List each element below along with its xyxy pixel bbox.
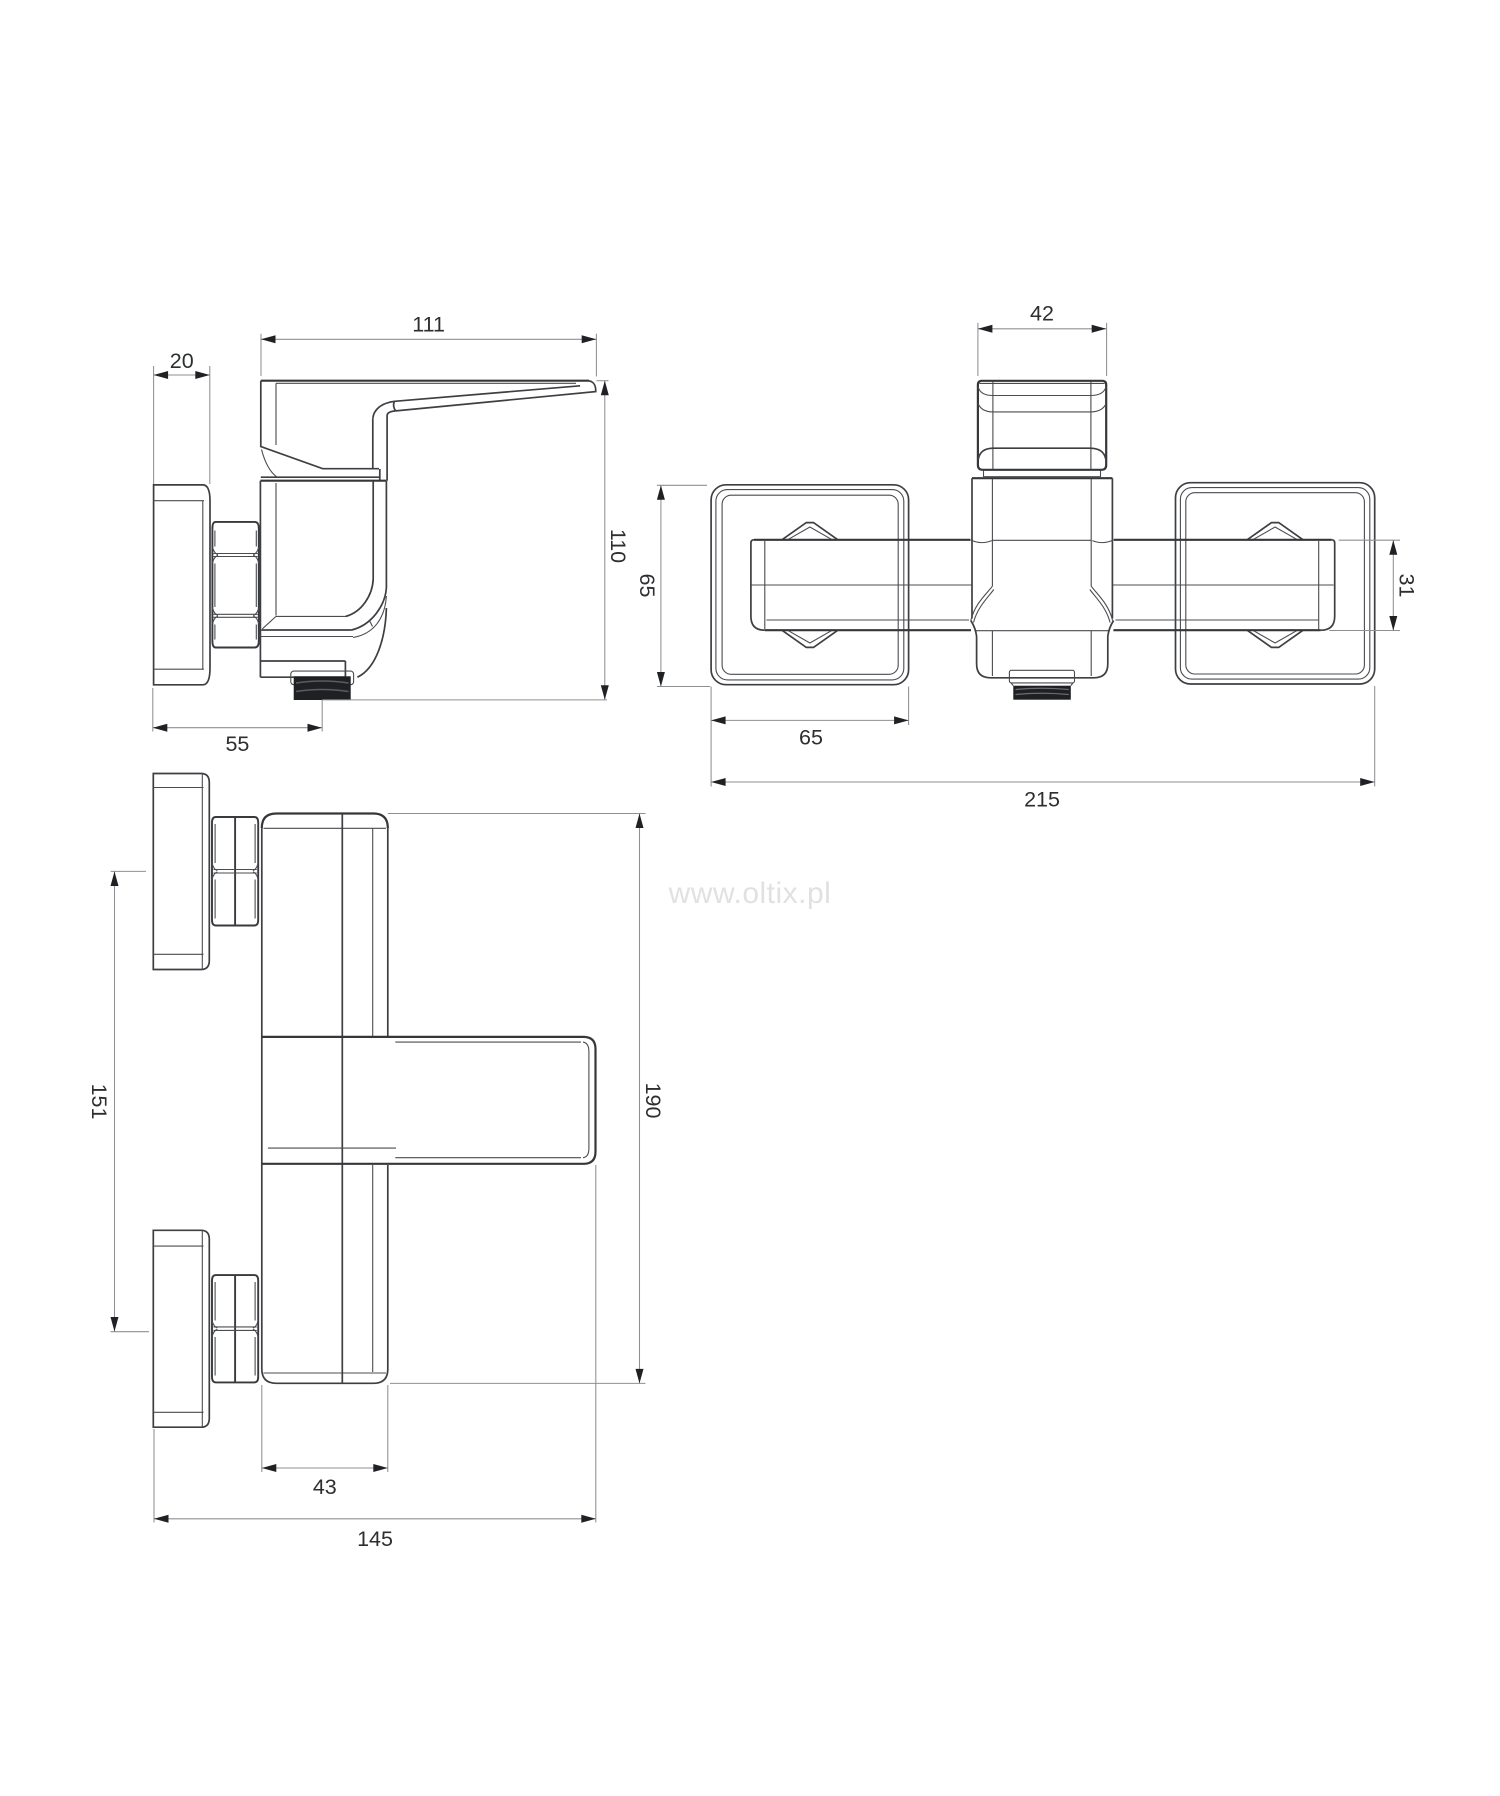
svg-text:20: 20: [170, 349, 194, 373]
svg-text:65: 65: [799, 726, 823, 750]
svg-text:145: 145: [357, 1527, 393, 1551]
svg-text:111: 111: [412, 313, 445, 337]
svg-text:65: 65: [635, 574, 659, 598]
svg-text:190: 190: [641, 1083, 665, 1119]
svg-text:55: 55: [225, 732, 249, 756]
svg-text:www.oltix.pl: www.oltix.pl: [668, 877, 832, 910]
svg-text:42: 42: [1030, 302, 1054, 326]
svg-text:43: 43: [313, 1475, 337, 1499]
svg-text:110: 110: [606, 529, 630, 563]
svg-text:151: 151: [87, 1084, 111, 1120]
svg-text:215: 215: [1024, 788, 1060, 812]
svg-text:31: 31: [1395, 574, 1419, 598]
